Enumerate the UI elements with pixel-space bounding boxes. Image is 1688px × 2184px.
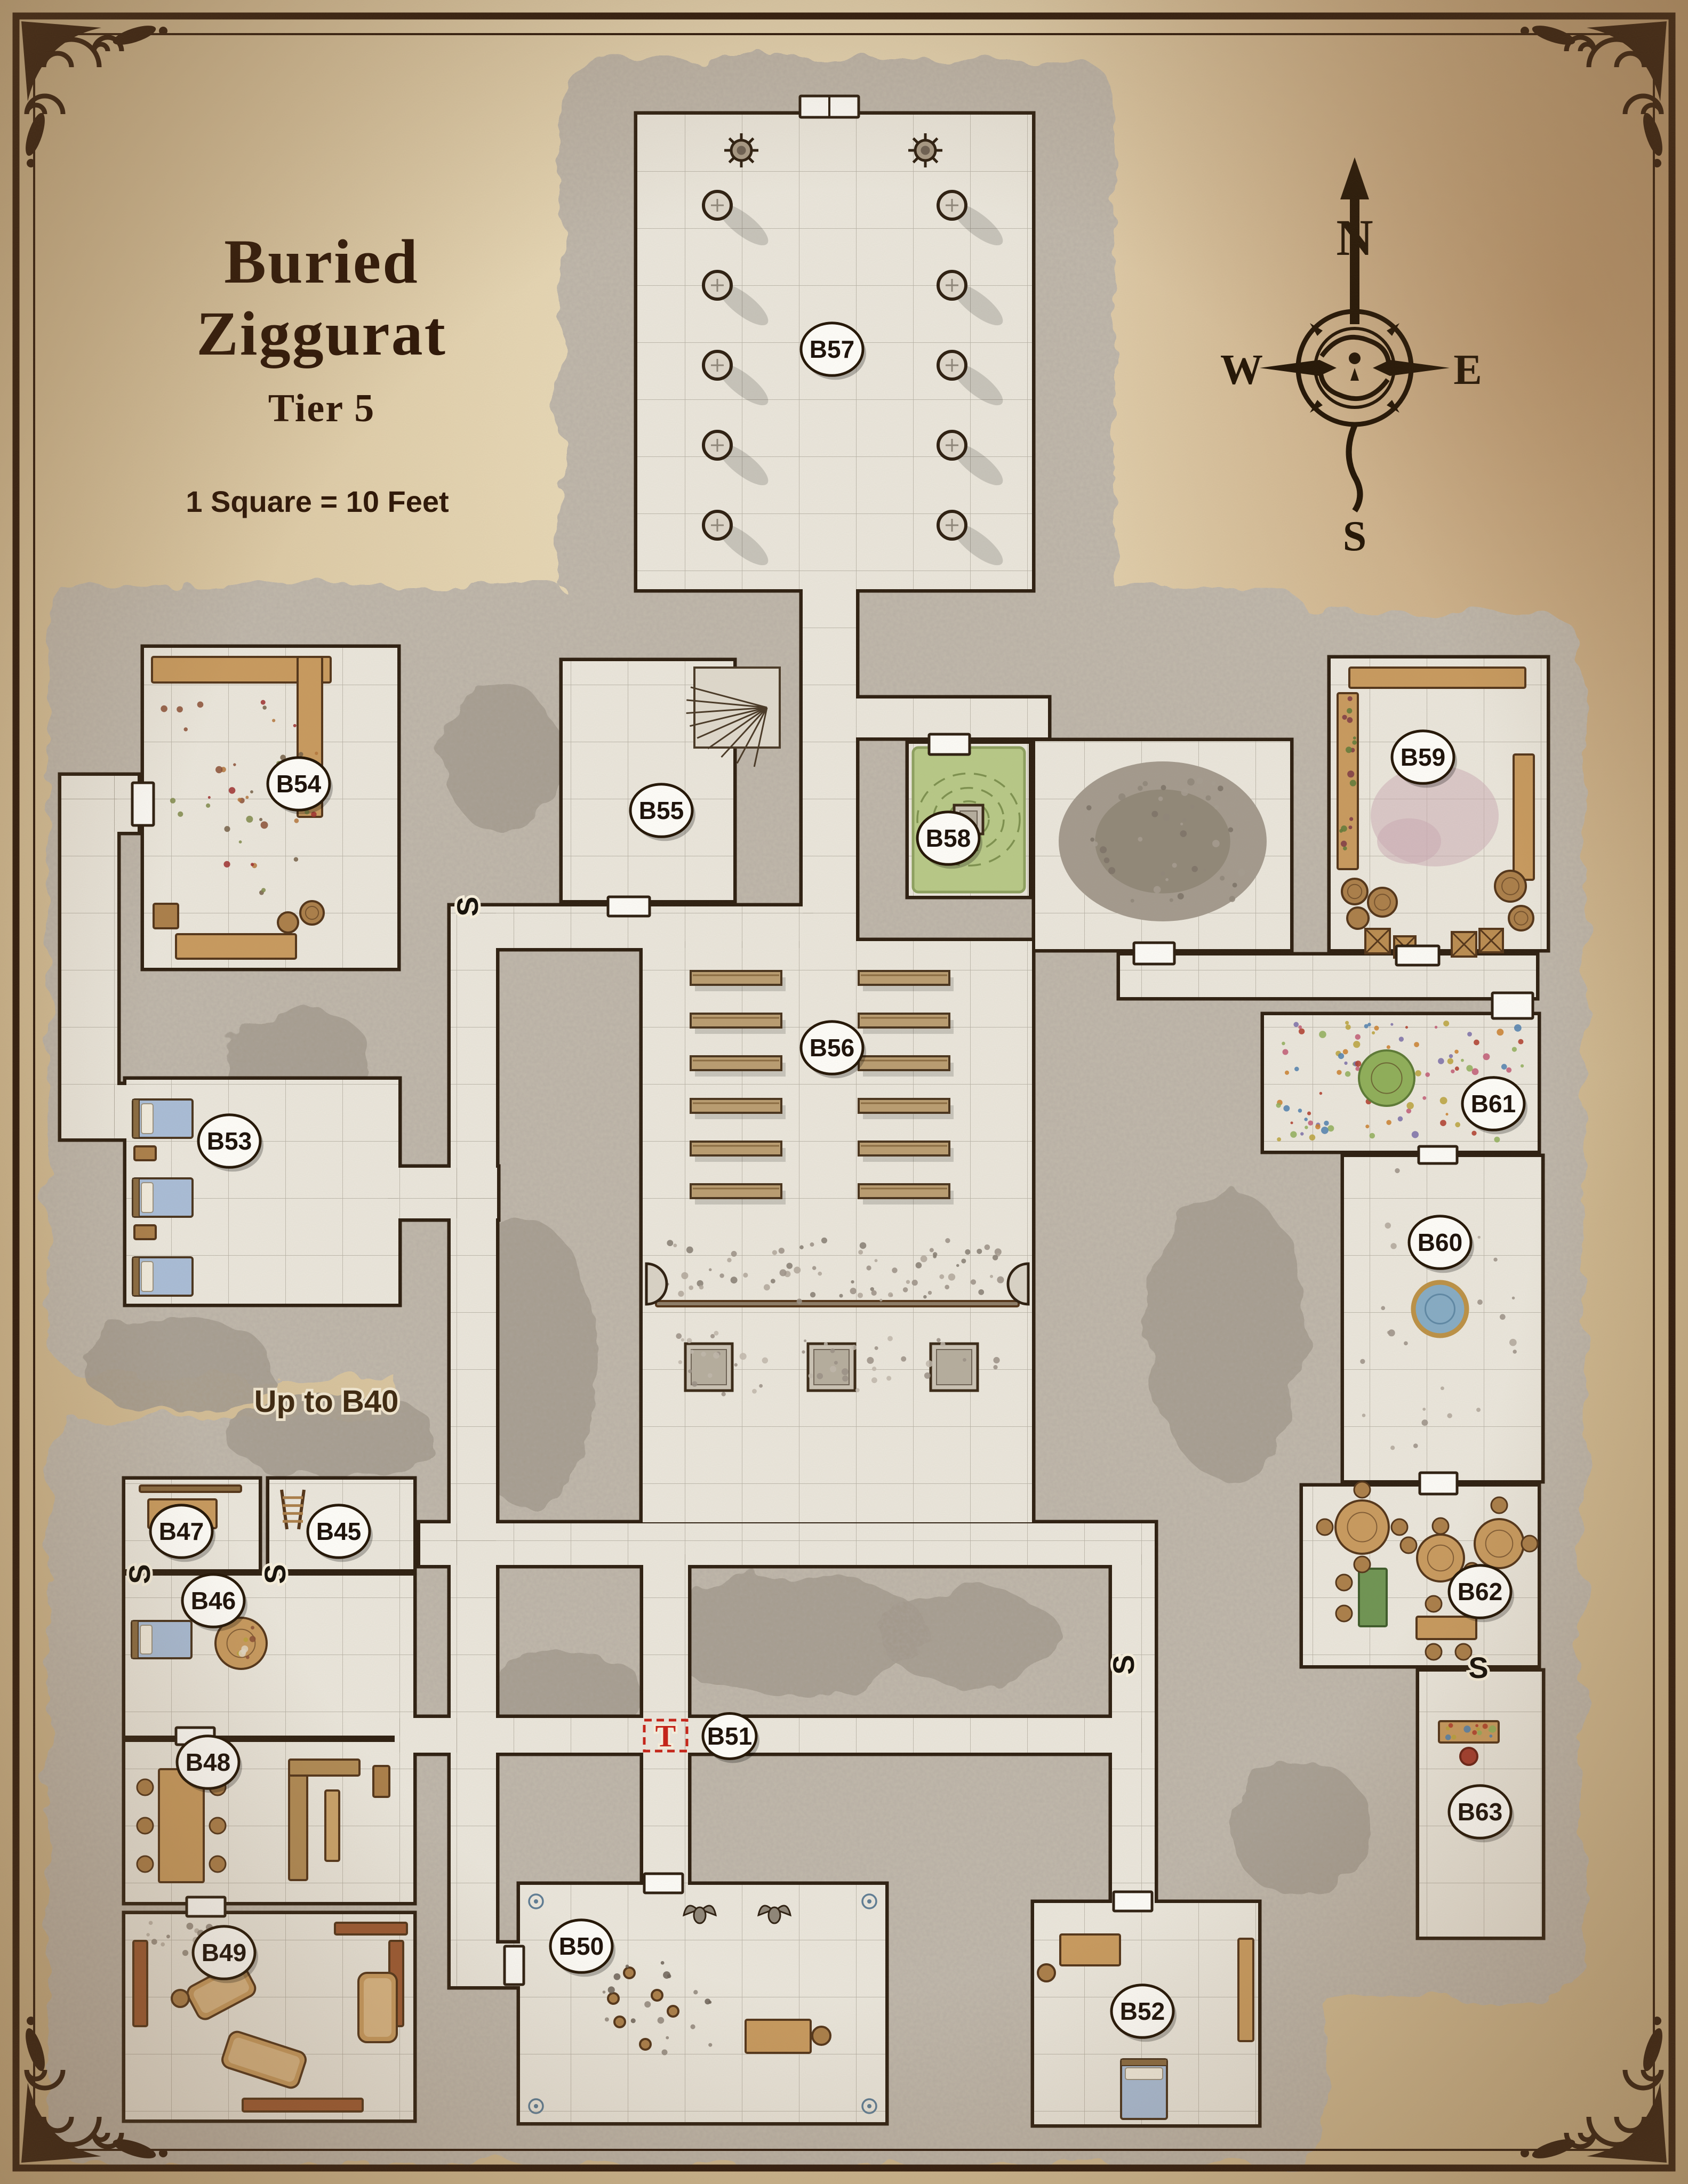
grain-overlay [0, 0, 1688, 2184]
dungeon-map: SSSSSTB57B54B55B58B59B56B53B61B60B47B45B… [0, 0, 1688, 2184]
